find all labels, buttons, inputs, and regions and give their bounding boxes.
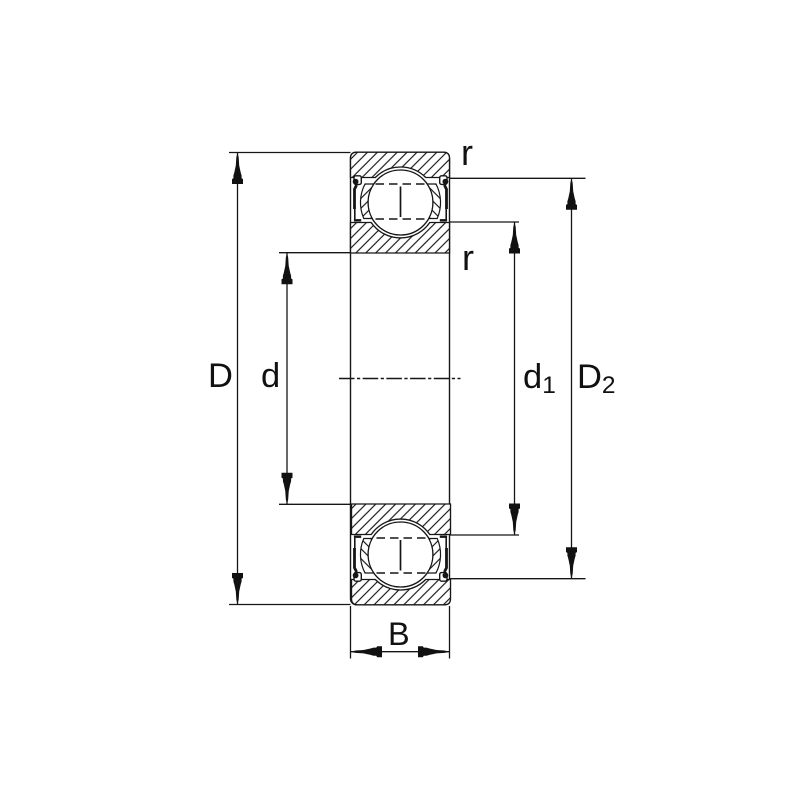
- svg-text:r: r: [461, 132, 473, 173]
- svg-text:D: D: [208, 357, 233, 395]
- svg-text:B: B: [388, 616, 410, 652]
- svg-text:d: d: [261, 357, 280, 395]
- svg-text:d1: d1: [523, 358, 556, 399]
- svg-text:r: r: [462, 237, 474, 278]
- svg-text:D2: D2: [577, 358, 616, 399]
